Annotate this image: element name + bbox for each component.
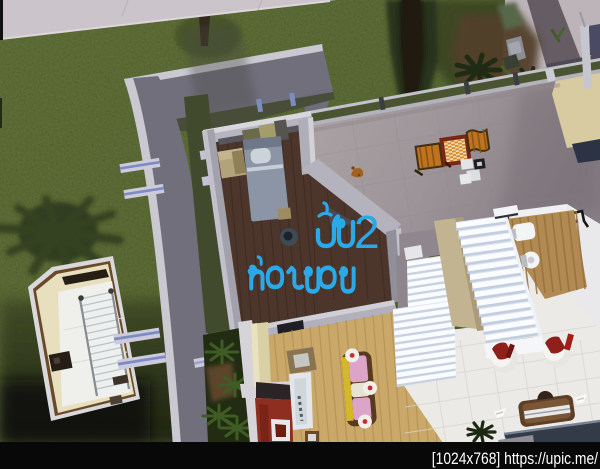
svg-text:[1024x768] https://upic.me/: [1024x768] https://upic.me/: [432, 450, 599, 468]
svg-text:2: 2: [354, 206, 380, 258]
